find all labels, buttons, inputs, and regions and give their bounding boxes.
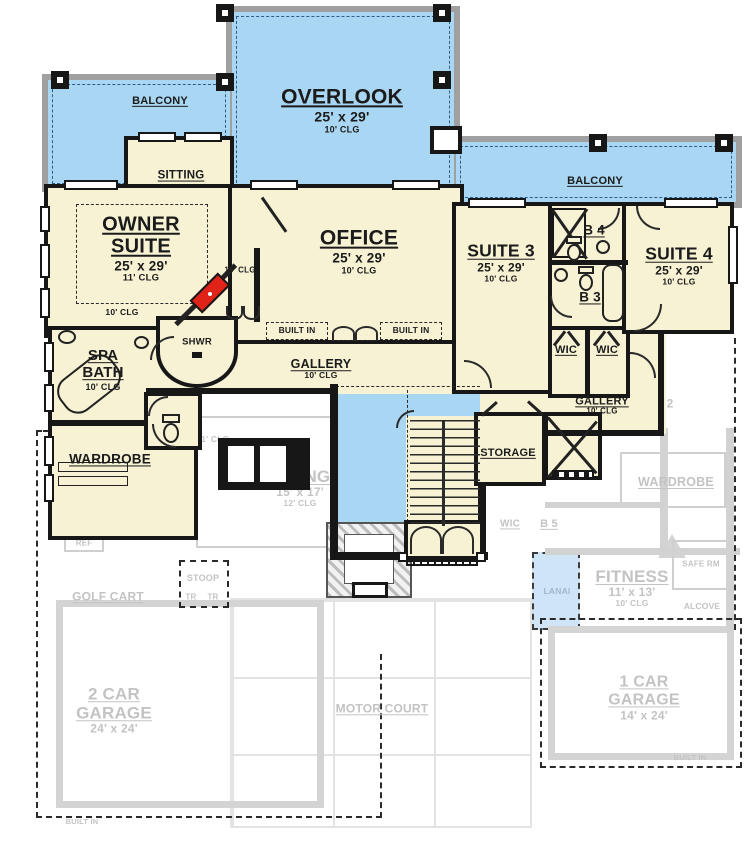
glabel-fitness: FITNESS 11' x 13' 10' CLG — [595, 567, 668, 609]
ghost-wall-4 — [545, 548, 740, 555]
wardrobe-shelf-2 — [58, 476, 128, 486]
bay-window-pane-2 — [260, 446, 286, 482]
b3-toilet-bowl — [579, 274, 593, 291]
fireplace-dot — [208, 292, 212, 296]
wall-spa-wardrobe — [50, 420, 148, 426]
b3-sink — [554, 268, 568, 282]
label-gallery-right: GALLERY 10' CLG — [575, 395, 629, 416]
shower-head — [192, 352, 202, 358]
label-owner-entry-clg: 10' CLG — [105, 308, 138, 318]
vestibule-door-right — [243, 306, 260, 320]
window-owner-left-3 — [40, 288, 50, 318]
glabel-level2: 2 — [667, 397, 674, 410]
label-overlook: OVERLOOK 25' x 29' 10' CLG — [281, 85, 403, 134]
glabel-golf-cart: GOLF CART — [72, 590, 144, 603]
label-wardrobe: WARDROBE — [69, 451, 151, 466]
wall-wic-divider — [585, 330, 590, 394]
spa-sink-right — [134, 336, 149, 349]
b4-toilet-tank — [566, 236, 582, 244]
spa-sink-left — [58, 330, 76, 344]
ghost-wall-3 — [545, 502, 667, 508]
gallery-open-edge — [336, 386, 480, 387]
stair-rail — [442, 420, 445, 526]
chimney-firebox — [352, 582, 388, 598]
deck-post-7 — [715, 134, 733, 152]
label-b4: B 4 — [583, 222, 605, 237]
window-suite4-right — [728, 226, 738, 284]
owner-toilet-tank — [162, 414, 180, 423]
glabel-wardrobe: WARDROBE — [638, 475, 714, 489]
wall-stair-left — [330, 384, 338, 560]
window-suite4-top — [664, 198, 718, 208]
office-double-door-right — [355, 326, 378, 341]
b3-toilet-tank — [578, 266, 594, 274]
glabel-wic: WIC — [500, 518, 520, 529]
wall-gallery-right — [658, 330, 664, 436]
deck-post-5 — [433, 71, 451, 89]
window-sitting-1 — [138, 132, 176, 142]
ghost-wall-1 — [660, 428, 668, 553]
ghost-roofline-right — [734, 338, 736, 630]
second-floor-plan: BALCONY OVERLOOK 25' x 29' 10' CLG BALCO… — [0, 0, 756, 850]
window-spa-left-2 — [44, 384, 54, 412]
label-sitting: SITTING — [158, 170, 205, 183]
glabel-garage2: 2 CAR GARAGE 24' x 24' — [64, 684, 164, 736]
deck-post-2 — [433, 4, 451, 22]
window-owner-left-2 — [40, 244, 50, 278]
window-owner-top — [64, 180, 118, 190]
entry-arch-left — [410, 526, 442, 554]
glabel-built-in-a: BUILT IN — [66, 818, 99, 826]
glabel-safe-rm: SAFE RM — [682, 561, 719, 570]
glabel-tr-b: TR — [207, 594, 218, 603]
b3-tub — [602, 264, 624, 322]
baluster-row — [406, 556, 478, 566]
bay-window-pane-1 — [228, 446, 254, 482]
vestibule-door-left — [226, 306, 243, 320]
label-spa-bath: SPA BATH 10' CLG — [76, 348, 131, 392]
stair-treads — [410, 420, 480, 526]
ghost-roofline-step — [380, 654, 382, 818]
deck-pier — [430, 126, 462, 154]
label-owner-suite: OWNER SUITE 25' x 29' 11' CLG — [85, 214, 197, 285]
b4-sink — [596, 240, 610, 254]
label-suite3: SUITE 3 25' x 29' 10' CLG — [467, 242, 535, 285]
deck-post-3 — [51, 71, 69, 89]
deck-post-1 — [216, 4, 234, 22]
window-spa-left-1 — [44, 342, 54, 372]
glabel-tr-a: TR — [185, 594, 196, 603]
label-b3: B 3 — [579, 289, 601, 304]
glabel-stoop: STOOP — [187, 573, 219, 583]
deck-post-4 — [216, 73, 234, 91]
label-shower: SHWR — [182, 338, 212, 349]
b4-toilet-bowl — [567, 244, 581, 261]
label-built-in-right: BUILT IN — [393, 326, 430, 336]
ghost-roofline-left-v — [36, 430, 38, 818]
glabel-ref: REF — [76, 540, 93, 549]
entry-arch-right — [442, 526, 474, 554]
owner-toilet-bowl — [163, 423, 179, 443]
label-balcony-left: BALCONY — [132, 95, 188, 107]
glabel-b5: B 5 — [540, 518, 558, 530]
glabel-built-in-b: BUILT IN — [674, 754, 707, 762]
window-office-top-1 — [250, 180, 298, 190]
office-double-door-left — [332, 326, 355, 341]
window-wardrobe-left-2 — [44, 474, 54, 502]
window-suite3-top — [468, 198, 526, 208]
label-wic-a: WIC — [555, 344, 577, 356]
window-office-top-2 — [392, 180, 440, 190]
glabel-garage1: 1 CAR GARAGE 14' x 24' — [599, 673, 689, 722]
label-office: OFFICE 25' x 29' 10' CLG — [320, 227, 398, 276]
label-suite4: SUITE 4 25' x 29' 10' CLG — [645, 245, 713, 288]
label-balcony-right: BALCONY — [567, 175, 623, 187]
balcony-right-edge — [460, 146, 732, 198]
glabel-motor-court: MOTOR COURT — [336, 702, 429, 715]
ghost-wall-2 — [726, 428, 734, 633]
window-wardrobe-left-1 — [44, 436, 54, 466]
window-sitting-2 — [184, 132, 222, 142]
glabel-lanai: LANAI — [544, 587, 571, 597]
wall-gallery-bottom — [146, 388, 338, 394]
label-wic-b: WIC — [596, 344, 618, 356]
label-storage: STORAGE — [480, 447, 536, 459]
label-gallery: GALLERY 10' CLG — [291, 357, 352, 381]
glabel-alcove: ALCOVE — [684, 602, 721, 612]
label-built-in-left: BUILT IN — [279, 326, 316, 336]
window-owner-left-1 — [40, 206, 50, 232]
label-vestibule-clg: 10' CLG — [224, 267, 255, 276]
deck-post-6 — [589, 134, 607, 152]
elevator-gate — [552, 470, 594, 479]
